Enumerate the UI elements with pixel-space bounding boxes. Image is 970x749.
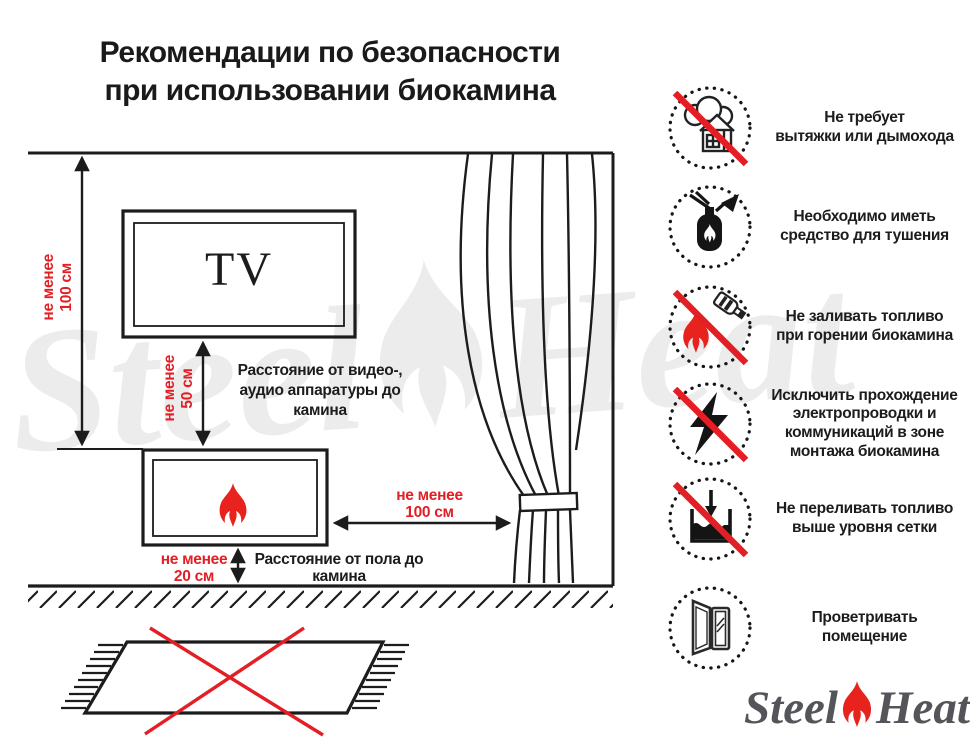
safety-text: Не требует вытяжки или дымохода [763, 109, 966, 146]
steelheat-logo: Steel Heat [744, 680, 970, 732]
safety-item-extinguisher: Необходимо иметь средство для тушения [666, 183, 966, 271]
safety-item-no-chimney: Не требует вытяжки или дымохода [666, 84, 966, 172]
dim-label-tv-50cm: не менее 50 см [161, 355, 197, 422]
fireplace-box [143, 450, 327, 545]
safety-item-no-overfilling: Не переливать топливо выше уровня сетки [666, 475, 966, 563]
tv-label: TV [123, 244, 355, 296]
ventilate-room-icon [666, 584, 754, 672]
safety-item-ventilate: Проветривать помещение [666, 584, 966, 672]
red-cross [145, 628, 323, 735]
dim-label-floor-20cm: не менее 20 см [152, 551, 236, 586]
curtain-tie [520, 493, 578, 511]
logo-flame-icon [835, 680, 879, 730]
desc-floor-distance: Расстояние от пола до камина [248, 551, 430, 586]
safety-item-no-refueling: Не заливать топливо при горении биокамин… [666, 283, 966, 371]
safety-text: Не заливать топливо при горении биокамин… [763, 308, 966, 345]
safety-item-no-wiring: Исключить прохождение электропроводки и … [666, 380, 966, 468]
rug-crossed [61, 628, 409, 735]
no-electrical-wiring-icon [666, 380, 754, 468]
logo-steel: Steel [744, 685, 838, 732]
safety-text: Необходимо иметь средство для тушения [763, 208, 966, 245]
floor-hatching [28, 589, 613, 608]
no-refueling-while-burning-icon [666, 283, 754, 371]
title-line-1: Рекомендации по безопасности [15, 34, 645, 72]
flame-icon [220, 483, 247, 527]
desc-video-audio-distance: Расстояние от видео-, аудио аппаратуры д… [210, 361, 430, 421]
no-overfilling-icon [666, 475, 754, 563]
dim-label-curtain-100cm: не менее 100 см [372, 487, 487, 522]
safety-poster: Steel Heat [0, 0, 970, 749]
safety-text: Проветривать помещение [763, 609, 966, 646]
rug-fringe [61, 645, 409, 708]
title-line-2: при использовании биокамина [15, 72, 645, 110]
no-chimney-icon [666, 84, 754, 172]
page-title: Рекомендации по безопасности при использ… [15, 34, 645, 109]
logo-heat: Heat [876, 685, 970, 732]
dim-label-wall-100cm: не менее 100 см [40, 254, 76, 321]
safety-text: Не переливать топливо выше уровня сетки [763, 500, 966, 537]
safety-text: Исключить прохождение электропроводки и … [763, 387, 966, 461]
fire-extinguisher-icon [666, 183, 754, 271]
